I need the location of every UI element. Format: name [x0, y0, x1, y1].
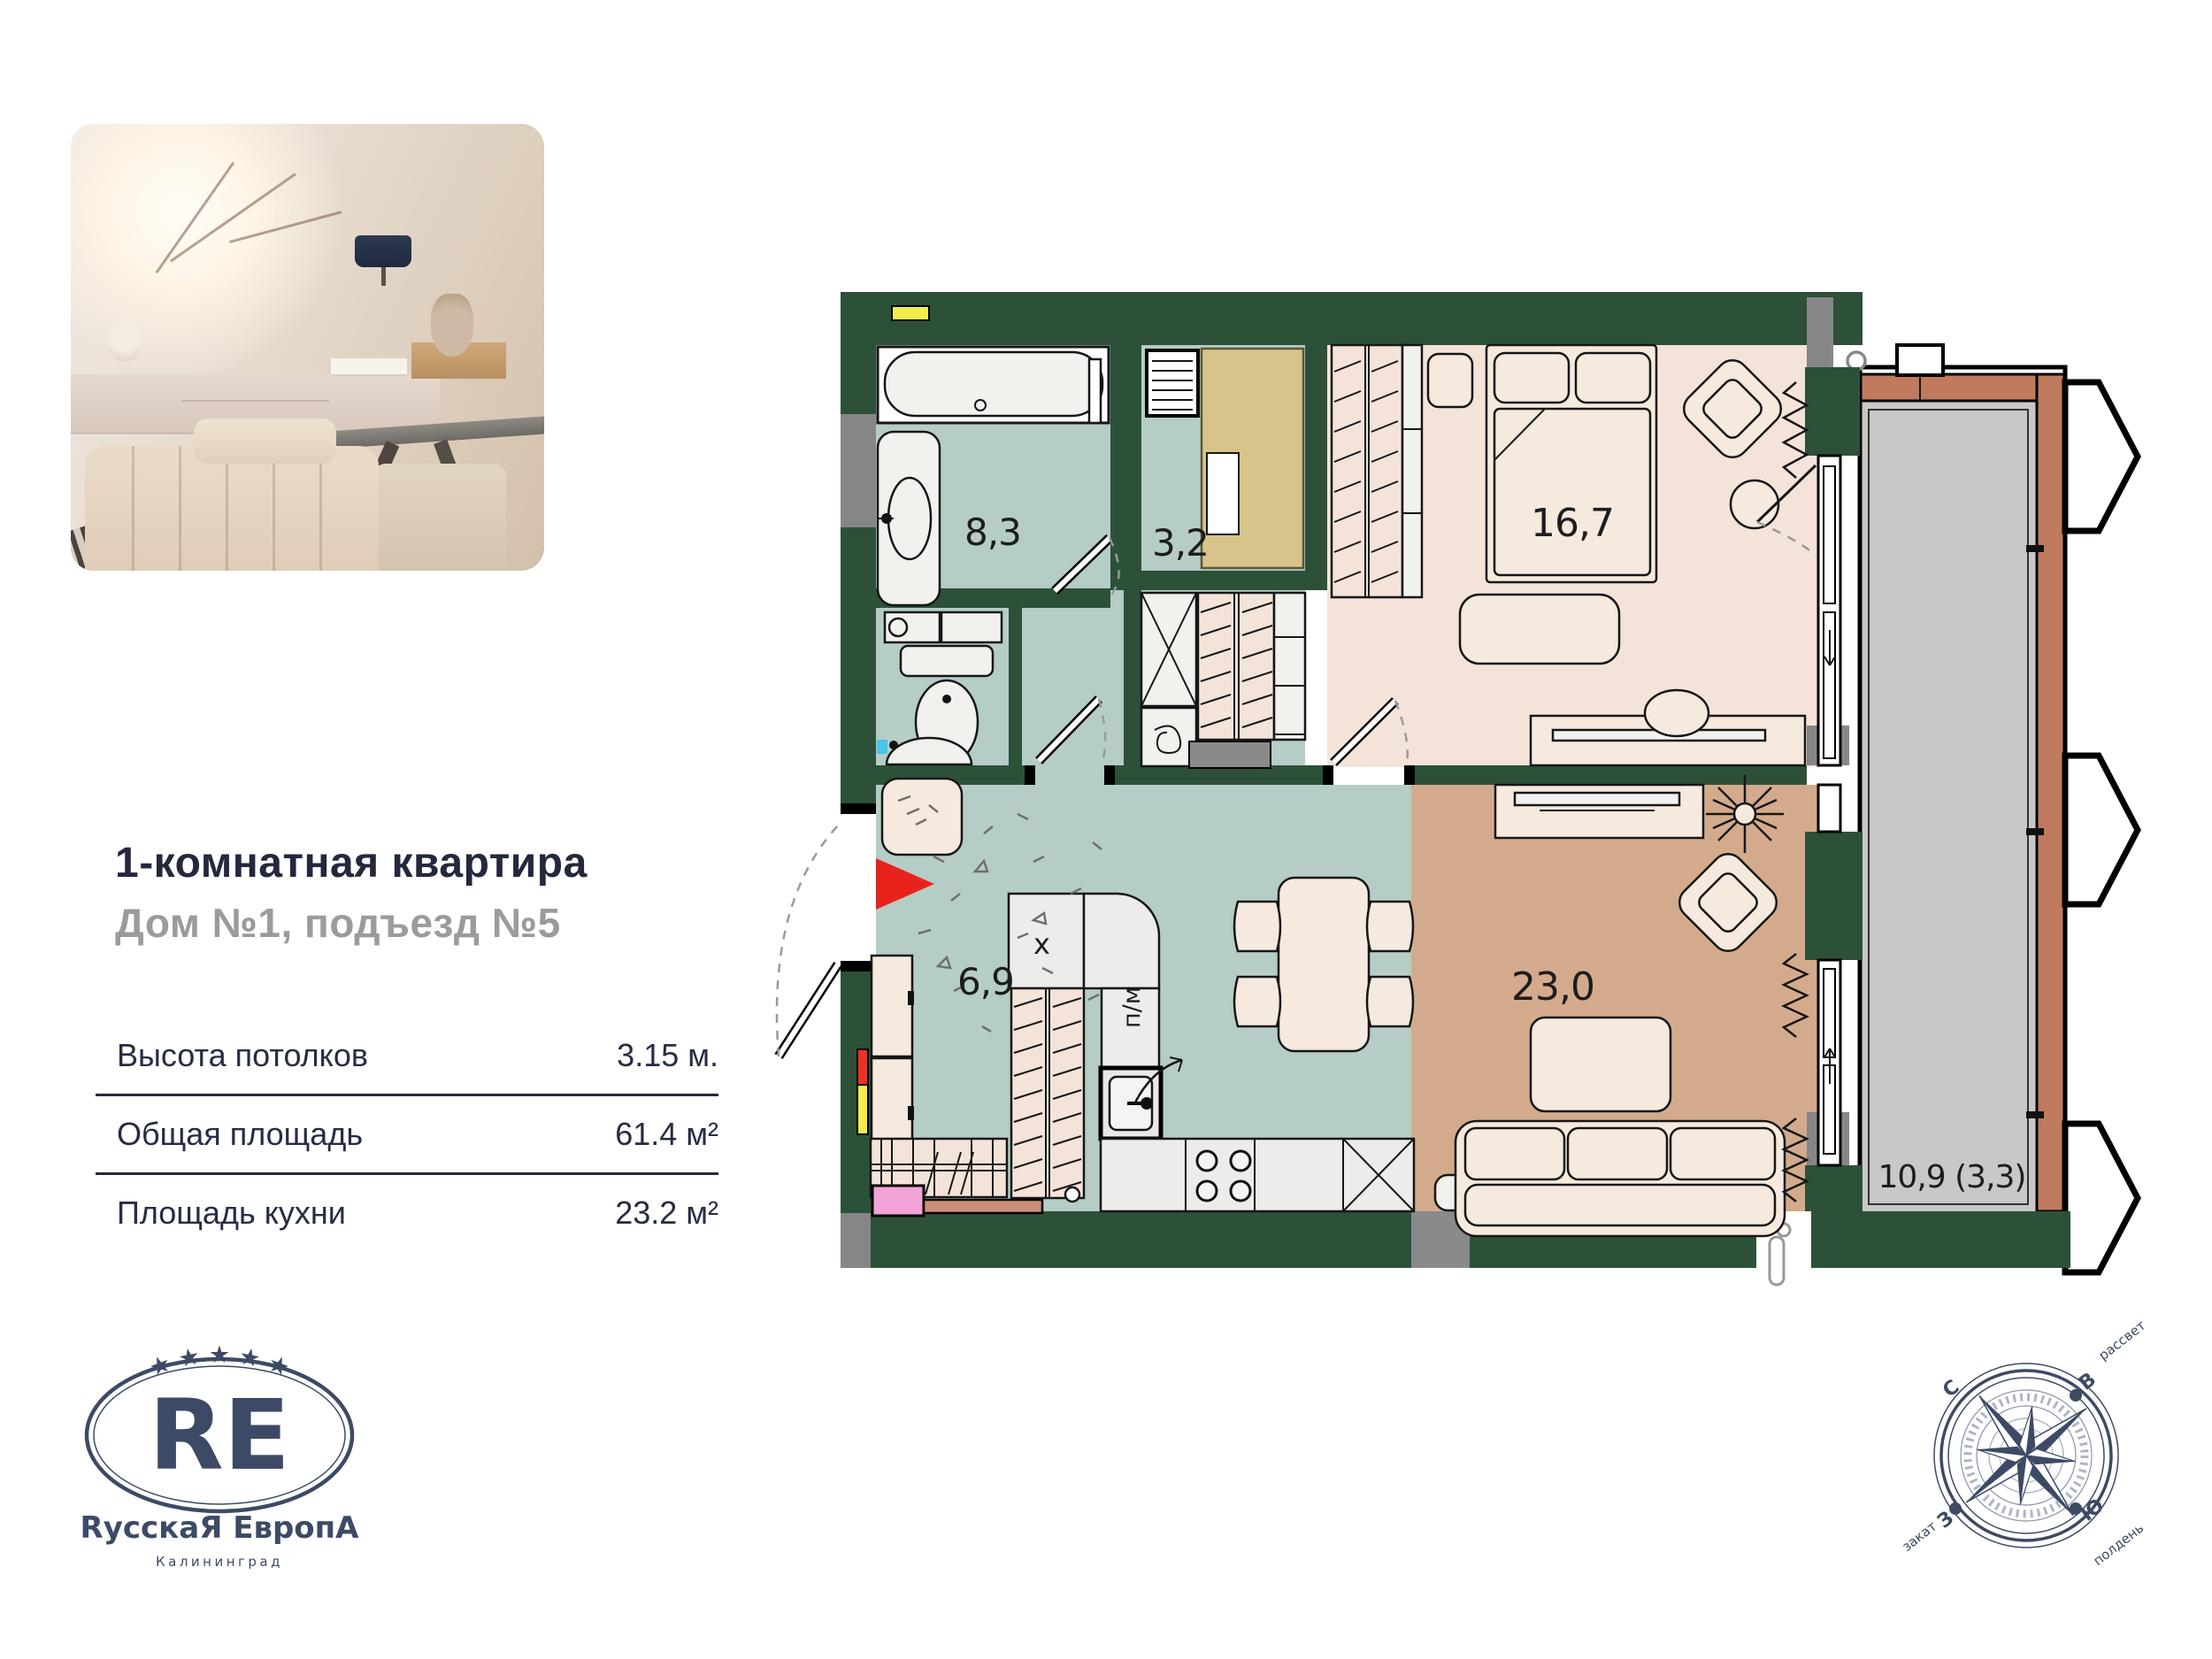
dining-chair — [1234, 977, 1280, 1026]
spec-value: 23.2 м² — [615, 1194, 718, 1232]
logo-name: RусскаЯ ЕвропА — [81, 1510, 360, 1546]
shelf-strip — [1274, 593, 1305, 740]
pier-green — [1805, 832, 1863, 960]
wall-top — [841, 292, 1863, 345]
compass-north-label: С — [1939, 1376, 1963, 1402]
company-logo: ★ ★ ★ ★ ★ RE RусскаЯ ЕвропА Калининград — [71, 1327, 372, 1619]
table-lamp — [355, 235, 411, 266]
tufted-sofa — [85, 446, 379, 571]
corner-counter — [1084, 894, 1159, 988]
wc-shelf — [941, 612, 1002, 642]
entry-door — [777, 825, 839, 1056]
marker-yellow — [857, 1085, 868, 1134]
spec-label: Площадь кухни — [96, 1194, 346, 1232]
corner-sink-tap — [889, 741, 898, 749]
dining-chair — [1234, 902, 1280, 951]
fridge-label: х — [1033, 927, 1050, 961]
pillow — [1494, 353, 1569, 403]
page-subtitle: Дом №1, подъезд №5 — [115, 899, 787, 947]
pantry-column — [1011, 988, 1084, 1202]
logo-city: Калининград — [156, 1554, 283, 1570]
handle — [908, 1106, 914, 1120]
closet-shelf — [1207, 453, 1239, 534]
handle — [908, 991, 914, 1005]
loggia-floor — [1860, 401, 2037, 1211]
downpipe-icon — [1770, 1237, 1784, 1285]
blanket — [1494, 409, 1650, 575]
wall-bedroom-living — [1411, 765, 1807, 785]
low-shelf — [924, 1200, 1042, 1213]
dining-table — [1279, 878, 1369, 1051]
bedroom-area-label: 16,7 — [1531, 501, 1614, 546]
bed-bench — [1460, 595, 1619, 664]
wall-bedroom-left — [1305, 292, 1327, 590]
hall-area-label: 6,9 — [957, 960, 1014, 1003]
bed — [1486, 345, 1656, 582]
spec-table: Высота потолков 3.15 м. Общая площадь 61… — [96, 1018, 718, 1251]
spec-value: 3.15 м. — [617, 1037, 718, 1074]
interior-photo — [71, 124, 544, 571]
page-title: 1-комнатная квартира — [115, 839, 787, 887]
sofa — [1455, 1121, 1785, 1236]
wall-closet-bottom — [1141, 571, 1310, 590]
counter-run — [1101, 1139, 1414, 1211]
marker-pink — [872, 1186, 924, 1216]
living-window-a — [1818, 785, 1840, 832]
knob — [1065, 1187, 1079, 1202]
loggia-facade-top — [1860, 374, 2037, 401]
side-table — [1731, 480, 1778, 528]
pier-green — [1805, 367, 1860, 456]
dining-chair — [1367, 902, 1413, 951]
dishwasher-label: п/м — [1118, 987, 1146, 1028]
sofa-cushion — [1671, 1128, 1775, 1179]
spec-label: Общая площадь — [96, 1116, 363, 1153]
closet-area-label: 3,2 — [1152, 521, 1209, 565]
shelf-strip — [1402, 345, 1422, 597]
sculpture-lamp — [109, 320, 142, 360]
glazing-mullion — [2026, 1111, 2044, 1118]
spec-row-total-area: Общая площадь 61.4 м² — [96, 1094, 718, 1172]
fan-box — [1141, 708, 1196, 766]
books — [331, 358, 407, 374]
marker-cyan — [877, 740, 887, 754]
threshold-gray — [1189, 741, 1271, 768]
compass-dawn-label: рассвет — [2095, 1320, 2148, 1363]
sink-basin — [888, 478, 931, 559]
spec-row-ceiling: Высота потолков 3.15 м. — [96, 1018, 718, 1094]
jamb — [1104, 765, 1115, 785]
marker-red — [857, 1049, 868, 1085]
tv — [1515, 793, 1679, 805]
coffee-table — [1531, 1018, 1671, 1111]
jamb — [1025, 765, 1035, 785]
loggia-facade-right — [2037, 374, 2065, 1211]
hall-bench — [882, 779, 962, 855]
sofa-back — [1465, 1185, 1775, 1225]
facade-arrow-icon — [2065, 1124, 2138, 1272]
towel-rail — [1089, 359, 1101, 423]
living-area-label: 23,0 — [1511, 964, 1594, 1010]
hall-wardrobe — [1198, 593, 1274, 740]
dining-chair — [1367, 977, 1413, 1026]
hall-cabinet — [872, 956, 912, 1056]
wall-bath-closet — [1110, 345, 1141, 590]
loggia — [1847, 345, 2138, 1272]
glazing-mullion — [2026, 545, 2044, 552]
facade-arrow-icon — [2065, 382, 2138, 531]
glazing-mullion — [2026, 828, 2044, 835]
floor-plan: 8,3 3,2 16,7 6,9 23,0 10,9 (3,3) х п/м — [752, 283, 2141, 1292]
desk-chair — [1645, 690, 1709, 736]
nightstand — [1428, 354, 1472, 407]
compass-dot-west — [1949, 1502, 1962, 1515]
compass-rose: С В З Ю рассвет закат полдень — [1898, 1320, 2208, 1621]
jamb — [1323, 765, 1333, 785]
wall-niche-left — [1124, 588, 1141, 765]
toilet-button — [942, 695, 951, 703]
page: { "listing": { "title": "1-комнатная ква… — [0, 0, 2212, 1659]
spec-label: Высота потолков — [96, 1037, 368, 1074]
sofa-cushion — [1568, 1128, 1667, 1179]
toilet-tank — [901, 646, 993, 676]
bathroom-area-label: 8,3 — [964, 511, 1021, 554]
facade-arrow-icon — [2065, 756, 2138, 904]
pier-green — [1805, 1165, 1863, 1211]
wall-wc-divider — [1009, 608, 1022, 765]
pillow — [194, 419, 336, 464]
sofa-cushion — [1465, 1128, 1564, 1179]
toilet-paper-icon — [889, 618, 907, 636]
compass-dot-east — [2070, 1389, 2082, 1402]
jamb — [841, 803, 876, 814]
vase — [431, 294, 473, 357]
facade-column — [1897, 345, 1943, 375]
pillow — [1576, 353, 1650, 403]
shaft-gray — [841, 414, 876, 527]
spec-row-kitchen-area: Площадь кухни 23.2 м² — [96, 1172, 718, 1251]
loggia-area-label: 10,9 (3,3) — [1878, 1159, 2026, 1195]
bathtub — [885, 352, 1102, 416]
wall-left-upper — [841, 292, 876, 814]
marker-yellow — [892, 306, 929, 320]
compass-noon-label: полдень — [2090, 1520, 2147, 1569]
logo-monogram: RE — [149, 1379, 290, 1492]
jamb — [1404, 765, 1415, 785]
compass-sunset-label: закат — [1899, 1518, 1939, 1555]
logo-stars: ★ ★ ★ ★ ★ — [145, 1341, 294, 1383]
bedroom-wardrobe — [1332, 345, 1402, 597]
shaft-gray — [841, 1213, 871, 1268]
spec-value: 61.4 м² — [615, 1116, 718, 1153]
armchair — [373, 464, 506, 571]
